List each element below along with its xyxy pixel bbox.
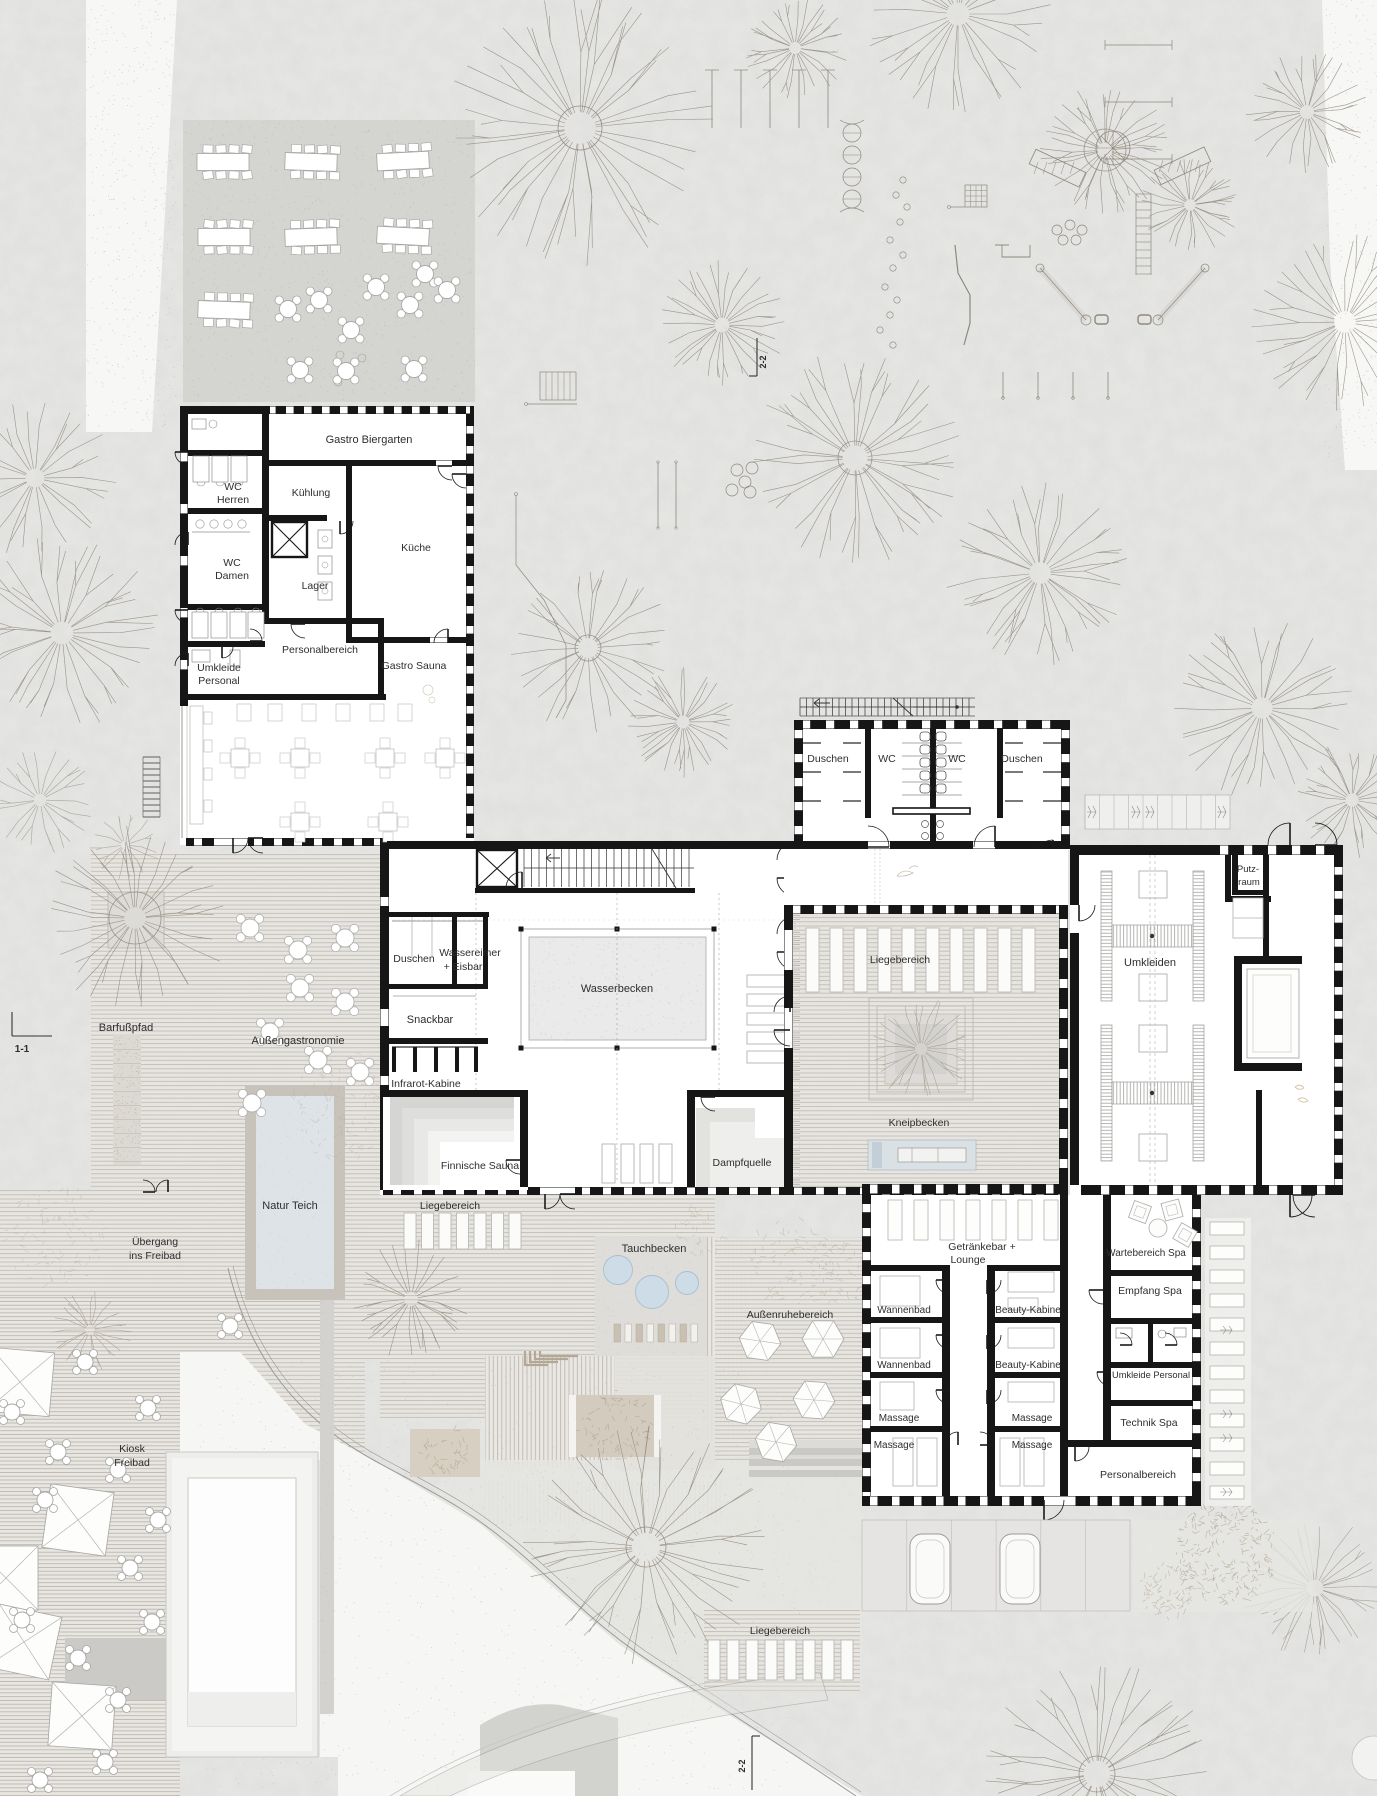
svg-text:WC: WC <box>223 557 241 569</box>
svg-text:Lounge: Lounge <box>950 1254 985 1266</box>
svg-text:Infrarot-Kabine: Infrarot-Kabine <box>391 1078 461 1090</box>
svg-text:Technik Spa: Technik Spa <box>1120 1417 1177 1429</box>
svg-text:Massage: Massage <box>879 1413 920 1424</box>
svg-text:2-2: 2-2 <box>758 355 768 368</box>
svg-text:Liegebereich: Liegebereich <box>870 954 930 966</box>
svg-text:+ Eisbar: + Eisbar <box>444 961 483 973</box>
svg-text:Natur Teich: Natur Teich <box>262 1200 317 1212</box>
svg-text:Duschen: Duschen <box>807 753 849 765</box>
svg-text:Snackbar: Snackbar <box>407 1014 454 1026</box>
svg-text:Herren: Herren <box>217 494 249 506</box>
svg-text:Umkleiden: Umkleiden <box>1124 957 1176 969</box>
svg-text:Lager: Lager <box>302 580 329 592</box>
svg-text:Beauty-Kabine: Beauty-Kabine <box>995 1360 1061 1371</box>
svg-text:Getränkebar +: Getränkebar + <box>948 1241 1015 1253</box>
svg-text:Kneipbecken: Kneipbecken <box>889 1117 950 1129</box>
svg-text:Tauchbecken: Tauchbecken <box>622 1243 687 1255</box>
svg-text:Putz-: Putz- <box>1237 864 1259 875</box>
svg-text:WC: WC <box>948 753 966 765</box>
svg-text:WC: WC <box>878 753 896 765</box>
svg-text:1-1: 1-1 <box>15 1044 30 1055</box>
svg-text:ins Freibad: ins Freibad <box>129 1250 181 1262</box>
svg-text:Freibad: Freibad <box>114 1457 150 1469</box>
svg-text:Barfußpfad: Barfußpfad <box>99 1022 153 1034</box>
svg-text:Duschen: Duschen <box>1001 753 1043 765</box>
svg-text:Personalbereich: Personalbereich <box>282 644 358 656</box>
svg-text:Personalbereich: Personalbereich <box>1100 1469 1176 1481</box>
svg-text:Massage: Massage <box>1012 1440 1053 1451</box>
svg-text:Duschen: Duschen <box>393 953 435 965</box>
svg-text:WC: WC <box>224 481 242 493</box>
svg-text:Massage: Massage <box>1012 1413 1053 1424</box>
svg-text:Personal: Personal <box>198 675 239 687</box>
svg-text:Liegebereich: Liegebereich <box>750 1625 810 1637</box>
svg-text:Gastro Sauna: Gastro Sauna <box>382 660 447 672</box>
svg-text:Finnische Sauna: Finnische Sauna <box>441 1160 519 1172</box>
svg-text:Dampfquelle: Dampfquelle <box>713 1157 772 1169</box>
svg-text:Wannenbad: Wannenbad <box>877 1305 931 1316</box>
svg-text:Übergang: Übergang <box>132 1236 178 1248</box>
svg-text:Außengastronomie: Außengastronomie <box>252 1035 345 1047</box>
svg-text:Empfang Spa: Empfang Spa <box>1118 1285 1182 1297</box>
svg-text:Gastro Biergarten: Gastro Biergarten <box>326 434 413 446</box>
svg-text:raum: raum <box>1238 877 1260 888</box>
svg-text:Damen: Damen <box>215 570 249 582</box>
svg-text:Umkleide: Umkleide <box>197 662 241 674</box>
svg-text:Umkleide Personal: Umkleide Personal <box>1112 1370 1190 1380</box>
svg-text:Wannenbad: Wannenbad <box>877 1360 931 1371</box>
svg-text:Küche: Küche <box>401 542 431 554</box>
svg-text:Kühlung: Kühlung <box>292 487 331 499</box>
svg-text:Massage: Massage <box>874 1440 915 1451</box>
svg-text:Wartebereich Spa: Wartebereich Spa <box>1106 1248 1186 1259</box>
svg-text:Wassereimer: Wassereimer <box>439 947 501 959</box>
svg-text:Außenruhebereich: Außenruhebereich <box>747 1309 834 1321</box>
svg-text:Liegebereich: Liegebereich <box>420 1200 480 1212</box>
svg-text:2-2: 2-2 <box>737 1759 747 1772</box>
svg-text:Beauty-Kabine: Beauty-Kabine <box>995 1305 1061 1316</box>
svg-text:Kiosk: Kiosk <box>119 1443 145 1455</box>
